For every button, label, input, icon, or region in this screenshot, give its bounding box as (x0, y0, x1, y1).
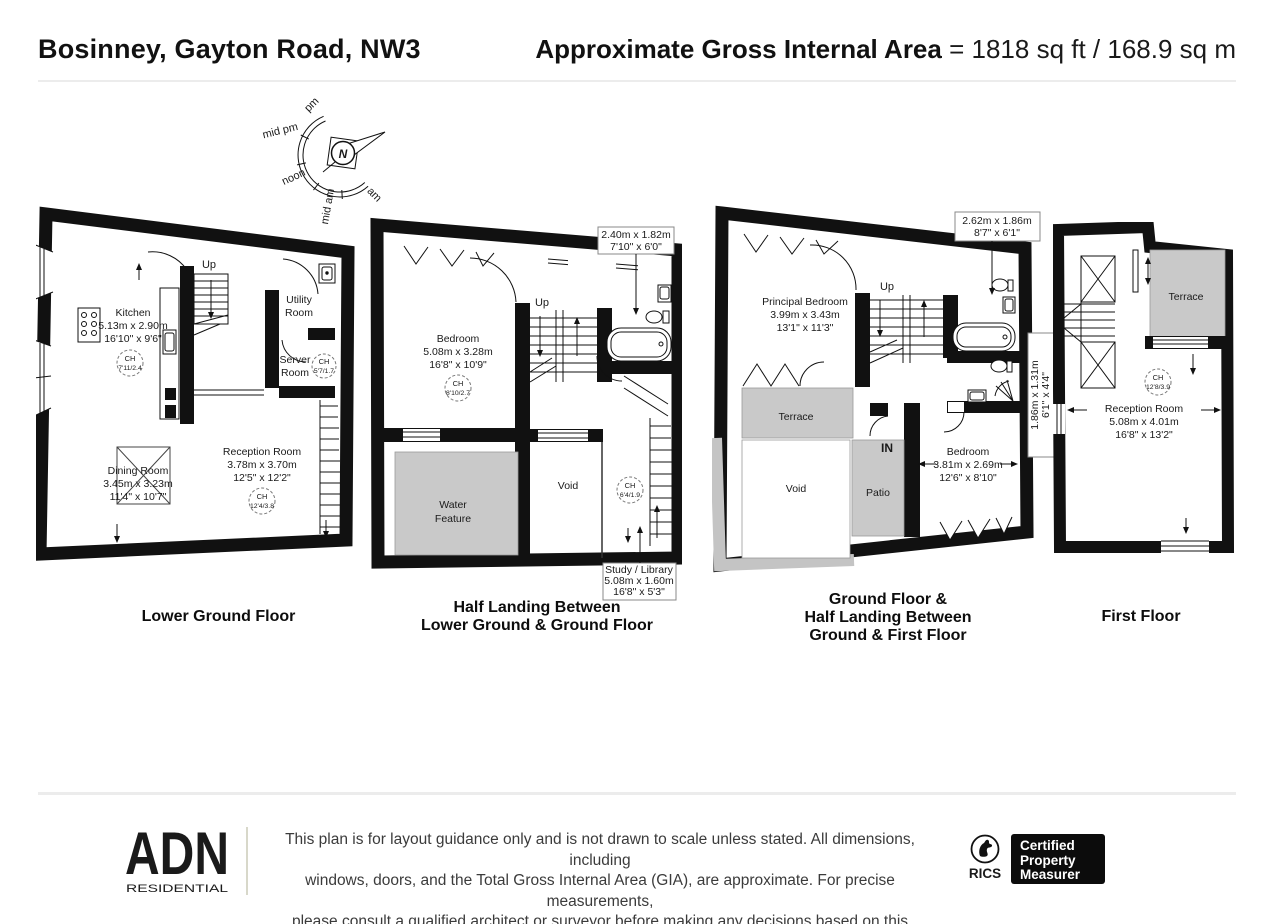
svg-text:CH: CH (453, 379, 464, 388)
caption-half-landing: Half Landing Between Lower Ground & Grou… (387, 599, 687, 635)
footer-logo-divider (246, 827, 248, 895)
svg-text:16'8" x 5'3": 16'8" x 5'3" (613, 586, 665, 598)
north-needle-icon: N (323, 132, 385, 172)
caption-lower-ground: Lower Ground Floor (86, 608, 351, 626)
logo-text: ADN (125, 826, 229, 887)
void-area (742, 440, 850, 558)
compass: N pm mid pm noon mid am am (255, 90, 405, 240)
patio-label: Patio (866, 487, 890, 499)
footer-divider (38, 792, 1236, 795)
ceiling-height-badge: CH 7'11/2.4 (117, 350, 143, 376)
bedroom-label: Bedroom (947, 446, 990, 458)
principal-bedroom-imperial: 13'1" x 11'3" (777, 322, 834, 334)
noon-label: noon (280, 167, 307, 188)
reception-metric: 5.08m x 4.01m (1109, 416, 1179, 428)
svg-text:2.62m x 1.86m: 2.62m x 1.86m (962, 215, 1032, 227)
terrace-label: Terrace (1168, 291, 1203, 303)
principal-bedroom-metric: 3.99m x 3.43m (770, 309, 840, 321)
server-label-2: Room (281, 367, 309, 379)
principal-bedroom-label: Principal Bedroom (762, 296, 848, 308)
bedroom-metric: 3.81m x 2.69m (933, 459, 1003, 471)
svg-text:7'11/2.4: 7'11/2.4 (118, 365, 142, 372)
shower-dimension-callout: 1.86m x 1.31m 6'1" x 4'4" (1028, 333, 1054, 457)
water-feature-label-1: Water (439, 499, 467, 511)
ceiling-height-badge: CH 6'4/1.9 (617, 477, 643, 503)
svg-text:5'7/1.7: 5'7/1.7 (314, 368, 334, 375)
ceiling-height-badge: CH 12'8/3.9 (1145, 369, 1171, 395)
svg-text:12'4/3.8: 12'4/3.8 (250, 503, 274, 510)
in-label: IN (881, 441, 893, 455)
svg-text:CH: CH (1153, 373, 1164, 382)
utility-label-1: Utility (286, 294, 312, 306)
kitchen-imperial: 16'10" x 9'6" (104, 333, 162, 345)
reception-imperial: 12'5" x 12'2" (233, 472, 291, 484)
up-label: Up (880, 281, 894, 293)
svg-text:8'10/2.7: 8'10/2.7 (446, 390, 470, 397)
floorplan-sheet: Bosinney, Gayton Road, NW3 Approximate G… (0, 0, 1274, 924)
logo-subtext: RESIDENTIAL (126, 883, 228, 895)
svg-text:2.40m x 1.82m: 2.40m x 1.82m (601, 229, 671, 241)
dining-label: Dining Room (108, 465, 169, 477)
plan-half-landing: 2.40m x 1.82m 7'10" x 6'0" Study / Libra… (370, 216, 682, 601)
up-label: Up (202, 259, 216, 271)
stove-icon (78, 308, 100, 342)
header-divider (38, 80, 1236, 82)
svg-text:12'8/3.9: 12'8/3.9 (1146, 384, 1170, 391)
reception-label: Reception Room (223, 446, 301, 458)
svg-text:8'7" x 6'1": 8'7" x 6'1" (974, 227, 1020, 239)
kitchen-label: Kitchen (115, 307, 150, 319)
am-label: am (364, 185, 383, 204)
svg-text:7'10" x 6'0": 7'10" x 6'0" (610, 241, 662, 253)
plan-first: Terrace CH 12'8/3.9 Reception Room 5.08m… (1053, 222, 1243, 572)
rics-lion-icon (979, 840, 992, 857)
dining-metric: 3.45m x 3.23m (103, 478, 173, 490)
toilet-icon (646, 311, 662, 323)
void-label: Void (786, 483, 807, 495)
plan-ground: 2.62m x 1.86m 8'7" x 6'1" 1.86m x 1.31m … (712, 200, 1060, 575)
svg-text:CH: CH (257, 492, 268, 501)
disclaimer: This plan is for layout guidance only an… (280, 830, 920, 924)
caption-first: First Floor (1046, 608, 1236, 626)
server-label-1: Server (280, 354, 311, 366)
north-label: N (339, 147, 348, 161)
page-title: Bosinney, Gayton Road, NW3 (38, 34, 421, 65)
dining-imperial: 11'4" x 10'7" (110, 491, 167, 503)
reception-metric: 3.78m x 3.70m (227, 459, 297, 471)
svg-text:CH: CH (625, 481, 636, 490)
plan-lower-ground: Up Kitchen 5.13m x 2.90m 16'10" x 9'6" C… (36, 202, 356, 562)
certified-property-measurer-badge: Certified Property Measurer (1011, 834, 1105, 884)
void-label: Void (558, 480, 579, 492)
rics-logo: RICS (963, 833, 1007, 883)
water-feature-label-2: Feature (435, 513, 471, 525)
adn-residential-logo: ADN RESIDENTIAL (122, 826, 234, 898)
bedroom-imperial: 16'8" x 10'9" (429, 359, 487, 371)
svg-text:6'4/1.9: 6'4/1.9 (620, 492, 640, 499)
ceiling-height-badge: CH 12'4/3.8 (249, 488, 275, 514)
area-value: = 1818 sq ft / 168.9 sq m (949, 34, 1236, 64)
svg-text:6'1" x 4'4": 6'1" x 4'4" (1040, 372, 1052, 418)
reception-label: Reception Room (1105, 403, 1183, 415)
reception-imperial: 16'8" x 13'2" (1115, 429, 1173, 441)
toilet-icon (991, 360, 1007, 372)
bedroom-metric: 5.08m x 3.28m (423, 346, 493, 358)
mid-pm-label: mid pm (261, 121, 299, 141)
pm-label: pm (302, 95, 321, 114)
door-gap (948, 402, 964, 412)
ceiling-height-badge: CH 5'7/1.7 (312, 354, 336, 378)
utility-label-2: Room (285, 307, 313, 319)
utility-sink-icon (319, 264, 335, 283)
caption-ground: Ground Floor & Half Landing Between Grou… (738, 591, 1038, 645)
svg-text:CH: CH (319, 357, 330, 366)
rics-text: RICS (969, 866, 1001, 881)
bedroom-label: Bedroom (437, 333, 480, 345)
kitchen-metric: 5.13m x 2.90m (98, 320, 168, 332)
up-label: Up (535, 297, 549, 309)
ceiling-height-badge: CH 8'10/2.7 (445, 375, 471, 401)
area-label: Approximate Gross Internal Area (535, 34, 942, 64)
gross-internal-area: Approximate Gross Internal Area = 1818 s… (535, 34, 1236, 65)
terrace-label: Terrace (778, 411, 813, 423)
bedroom-imperial: 12'6" x 8'10" (939, 472, 997, 484)
svg-text:CH: CH (125, 354, 136, 363)
